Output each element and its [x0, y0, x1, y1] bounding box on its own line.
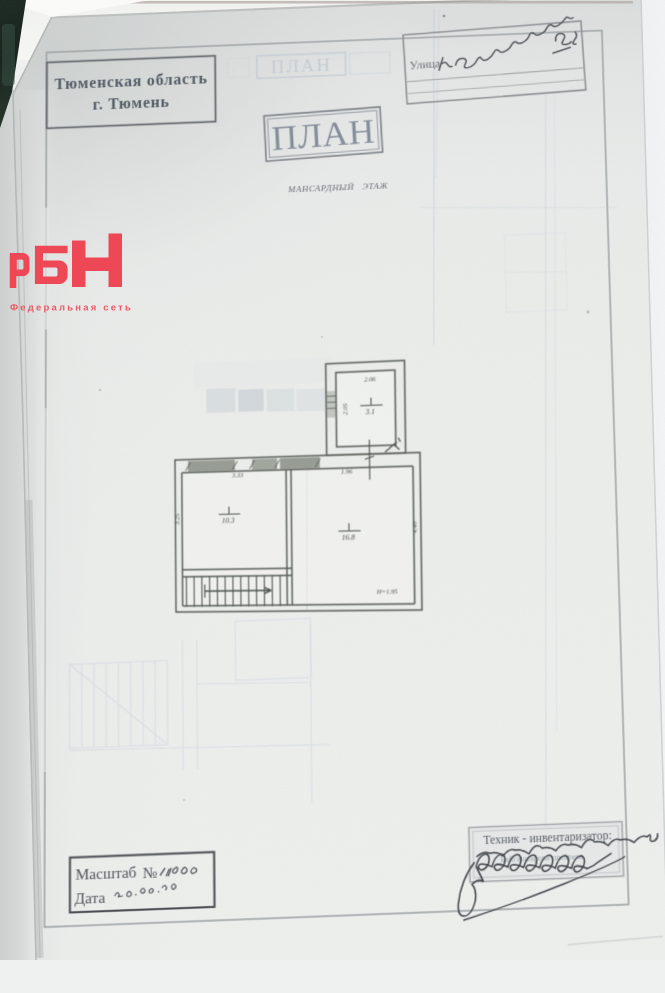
svg-text:Масштаб: Масштаб [76, 864, 137, 884]
svg-text:4.40: 4.40 [411, 520, 419, 533]
svg-text:3.25: 3.25 [174, 513, 181, 526]
svg-text:3.33: 3.33 [231, 472, 243, 480]
svg-text:Н=1.95: Н=1.95 [376, 588, 398, 596]
svg-text:10.3: 10.3 [222, 516, 235, 525]
svg-text:ПЛАН: ПЛАН [271, 112, 376, 158]
svg-text:Улица: Улица [409, 58, 440, 72]
svg-text:ПЛАН: ПЛАН [271, 55, 332, 77]
svg-text:16.8: 16.8 [342, 533, 356, 542]
svg-text:Тюменская область: Тюменская область [55, 70, 208, 93]
svg-text:2.05: 2.05 [342, 403, 350, 415]
svg-text:№: № [142, 865, 157, 883]
svg-text:МАНСАРДНЫЙ ЭТАЖ: МАНСАРДНЫЙ ЭТАЖ [287, 181, 389, 195]
svg-text:3.1: 3.1 [364, 407, 375, 416]
svg-text:г. Тюмень: г. Тюмень [93, 94, 170, 114]
svg-text:1.96: 1.96 [341, 468, 353, 476]
svg-text:Федеральная сеть: Федеральная сеть [10, 303, 133, 314]
svg-text:Дата: Дата [74, 890, 105, 909]
svg-text:2.06: 2.06 [364, 376, 377, 384]
